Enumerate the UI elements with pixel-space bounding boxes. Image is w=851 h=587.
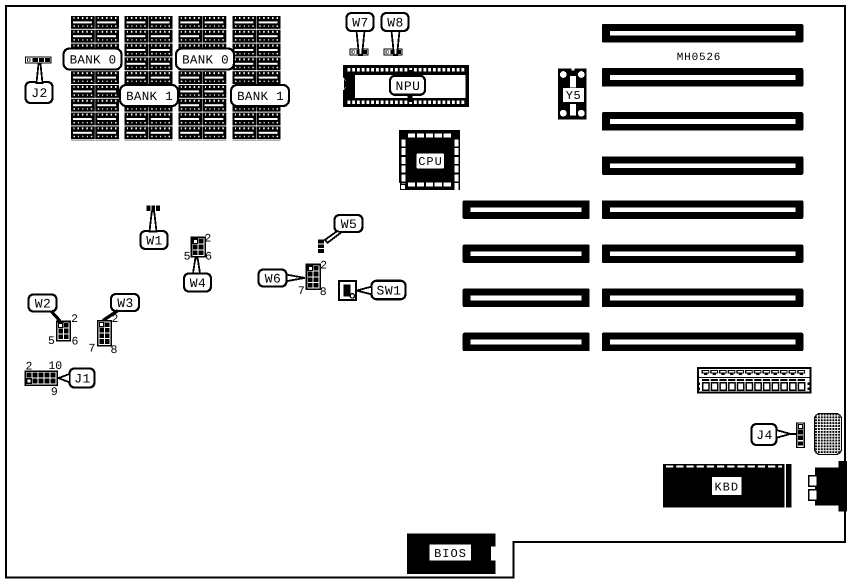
svg-text:W5: W5 [341, 217, 358, 232]
svg-text:2: 2 [204, 233, 211, 246]
svg-text:SW1: SW1 [377, 284, 402, 299]
svg-text:2: 2 [71, 313, 78, 326]
svg-text:J4: J4 [756, 428, 773, 443]
svg-text:BANK 1: BANK 1 [126, 90, 173, 104]
svg-text:Y5: Y5 [566, 89, 581, 103]
svg-text:9: 9 [51, 386, 58, 399]
svg-text:8: 8 [111, 344, 118, 357]
svg-text:BIOS: BIOS [434, 547, 467, 561]
svg-text:W6: W6 [265, 272, 282, 287]
svg-text:7: 7 [298, 285, 305, 298]
svg-text:CPU: CPU [418, 155, 443, 169]
svg-text:2: 2 [320, 259, 327, 272]
svg-text:5: 5 [184, 250, 191, 263]
svg-text:5: 5 [48, 335, 55, 348]
svg-text:W1: W1 [146, 234, 163, 249]
svg-text:W3: W3 [117, 296, 134, 311]
svg-text:8: 8 [320, 286, 327, 299]
svg-text:NPU: NPU [396, 79, 421, 94]
svg-text:W2: W2 [35, 297, 52, 312]
svg-text:6: 6 [205, 250, 212, 263]
svg-text:MH0526: MH0526 [677, 52, 721, 64]
svg-text:6: 6 [71, 336, 78, 349]
svg-text:BANK 1: BANK 1 [237, 90, 284, 104]
svg-text:7: 7 [89, 342, 96, 355]
svg-text:2: 2 [26, 361, 33, 374]
svg-text:BANK 0: BANK 0 [182, 54, 229, 68]
svg-text:W4: W4 [190, 276, 207, 291]
svg-text:W8: W8 [387, 16, 404, 31]
svg-text:J1: J1 [74, 372, 91, 387]
svg-text:W7: W7 [352, 16, 369, 31]
svg-text:BANK 0: BANK 0 [70, 54, 117, 68]
svg-text:J2: J2 [31, 86, 48, 101]
svg-text:KBD: KBD [714, 481, 739, 495]
svg-text:10: 10 [48, 360, 62, 373]
